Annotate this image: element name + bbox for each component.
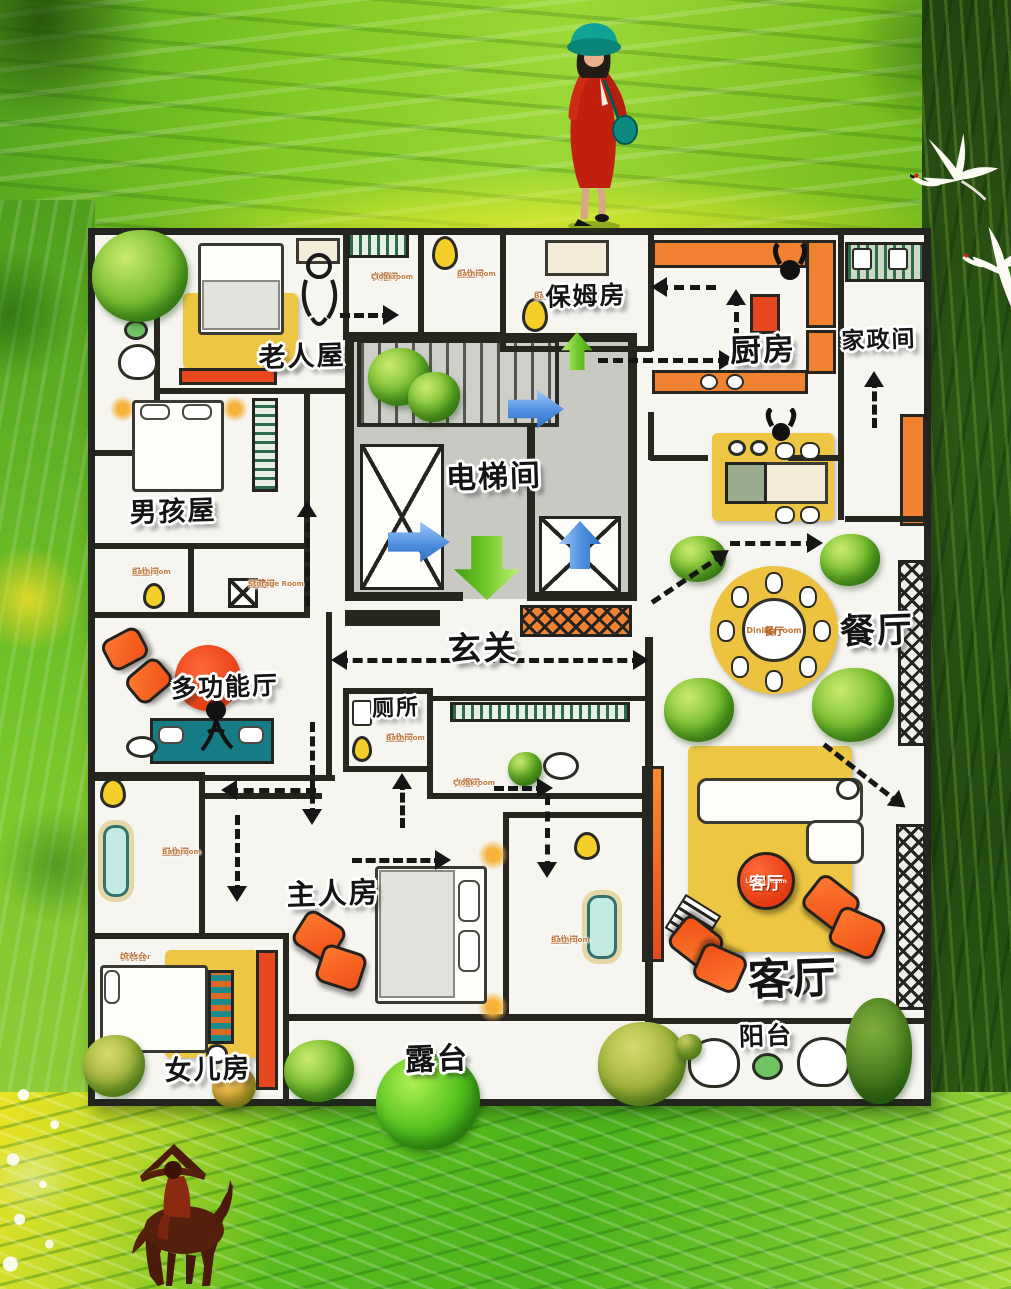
wall: [650, 455, 708, 461]
wall: [418, 228, 424, 332]
dining-chair: [800, 506, 820, 524]
room-label-toilet: 厕所: [372, 697, 421, 721]
basin: [543, 752, 579, 780]
wall: [95, 543, 308, 549]
daughter-dresser: [208, 970, 234, 1044]
room-label-nanny: 保姆房: [545, 282, 627, 310]
wall: [628, 333, 637, 599]
pillow: [104, 970, 120, 1004]
dining-badge-en: Dining room: [746, 626, 801, 635]
room-label-terrace: 露台: [404, 1044, 469, 1076]
flow-arrow: [352, 858, 444, 863]
flow-arrow: [400, 780, 405, 828]
dining-chair: [800, 442, 820, 460]
wall: [838, 228, 844, 520]
dining-table-badge: 餐厅 Dining room: [742, 598, 806, 662]
flow-arrow: [228, 788, 316, 793]
sink: [888, 248, 908, 270]
window-hatch: [896, 824, 926, 1010]
window-hatch: [898, 560, 926, 746]
toilet: [100, 778, 126, 808]
wall: [527, 425, 535, 601]
dining-chair: [813, 620, 831, 642]
crane-bird: [962, 212, 1011, 322]
bathtub: [98, 820, 134, 902]
crane-bird: [910, 122, 1002, 222]
wall: [427, 696, 649, 701]
flow-arrow: [340, 313, 392, 318]
kitchen-counter: [806, 240, 836, 328]
room-label-kitchen: 厨房: [729, 334, 796, 367]
room-label-daughter: 女儿房: [164, 1055, 252, 1085]
wall: [157, 388, 349, 394]
room-label-dining: 餐厅: [839, 613, 914, 651]
wall: [343, 766, 433, 772]
room-label-living: 客厅: [747, 957, 838, 1003]
toilet: [352, 736, 372, 762]
wall: [427, 694, 433, 796]
dining-chair: [799, 586, 817, 608]
toilet: [574, 832, 600, 860]
person-figure: [186, 698, 246, 758]
dining-chair: [731, 656, 749, 678]
boy-wardrobe: [252, 398, 278, 492]
master-blanket: [379, 870, 455, 998]
flow-arrow: [235, 815, 240, 895]
wall: [345, 333, 637, 342]
flow-arrow: [730, 541, 816, 546]
room-label-multi: 多功能厅: [171, 673, 280, 702]
room-label-elevator: 电梯间: [446, 461, 543, 494]
wall: [845, 516, 925, 522]
grass-field-top: [0, 0, 1011, 248]
room-label-master: 主人房: [286, 878, 380, 910]
foyer-bench: [520, 605, 632, 637]
pillow: [140, 404, 170, 420]
closet-rack: [450, 702, 630, 722]
pillow: [182, 404, 212, 420]
wall: [95, 933, 287, 939]
cloak-rack: [347, 232, 409, 258]
stove-burner: [700, 374, 718, 390]
pillow: [158, 726, 184, 744]
dining-chair: [717, 620, 735, 642]
elevator-shaft: [360, 444, 444, 590]
bathtub: [582, 890, 622, 964]
balcony-table: [124, 320, 148, 340]
ottoman: [836, 778, 860, 800]
dining-chair: [765, 572, 783, 594]
wash-basin: [352, 700, 372, 726]
living-room-badge: 客厅 Living Room: [737, 852, 795, 910]
pillow: [458, 880, 480, 922]
living-sofa: [806, 820, 864, 864]
wall: [503, 812, 649, 818]
toilet: [143, 583, 165, 609]
person-figure: [770, 242, 810, 292]
toilet: [522, 298, 548, 332]
dining-chair: [799, 656, 817, 678]
flow-arrow: [658, 285, 716, 290]
kitchen-island: [750, 294, 780, 334]
dining-chair: [775, 506, 795, 524]
cabinet: [900, 414, 926, 526]
wall: [345, 333, 354, 599]
side-table: [126, 736, 158, 758]
kitchen-counter: [806, 330, 836, 374]
balcony-chair: [797, 1037, 850, 1087]
lamp-glow: [222, 396, 248, 422]
island-hob: [725, 462, 767, 504]
balcony-table: [752, 1053, 783, 1080]
elder-blanket: [202, 280, 280, 330]
pillow: [458, 930, 480, 972]
room-label-balcony: 阳台: [739, 1023, 794, 1050]
dining-chair: [765, 670, 783, 692]
poster-canvas: 餐厅 Dining room 客厅 Livin: [0, 0, 1011, 1289]
room-label-housekeeping: 家政间: [841, 328, 917, 354]
cloche: [728, 440, 746, 456]
flow-arrow: [598, 358, 728, 363]
flow-arrow: [310, 722, 315, 818]
stove-burner: [726, 374, 744, 390]
sink: [852, 248, 872, 270]
flow-arrow: [305, 508, 310, 606]
foliage-strip-left: [0, 200, 95, 1150]
balcony-chair: [118, 344, 158, 380]
flow-arrow: [545, 795, 550, 871]
tree: [846, 998, 912, 1104]
wall: [188, 549, 194, 615]
wall: [500, 228, 506, 350]
wall: [343, 688, 349, 772]
room-label-boy: 男孩屋: [129, 497, 217, 527]
wall: [343, 688, 433, 694]
wall: [326, 612, 332, 775]
room-label-elder: 老人屋: [258, 342, 346, 372]
flow-arrow: [494, 786, 546, 791]
living-badge-en: Living Room: [745, 878, 787, 885]
shoe-cabinet: [345, 610, 440, 626]
wall: [345, 592, 463, 601]
flow-arrow: [872, 378, 877, 428]
dining-chair: [731, 586, 749, 608]
toilet: [432, 236, 458, 270]
horse-rider-figure: [116, 1126, 252, 1289]
wall: [648, 412, 654, 460]
nanny-bed: [545, 240, 609, 276]
wardrobe-strip: [256, 950, 278, 1090]
woman-in-red-figure: [540, 14, 652, 232]
room-label-foyer: 玄关: [447, 630, 518, 665]
wall: [283, 1014, 651, 1021]
person-figure: [762, 408, 800, 450]
wall: [645, 637, 653, 1022]
wall: [95, 612, 310, 618]
person-figure: [296, 252, 342, 334]
